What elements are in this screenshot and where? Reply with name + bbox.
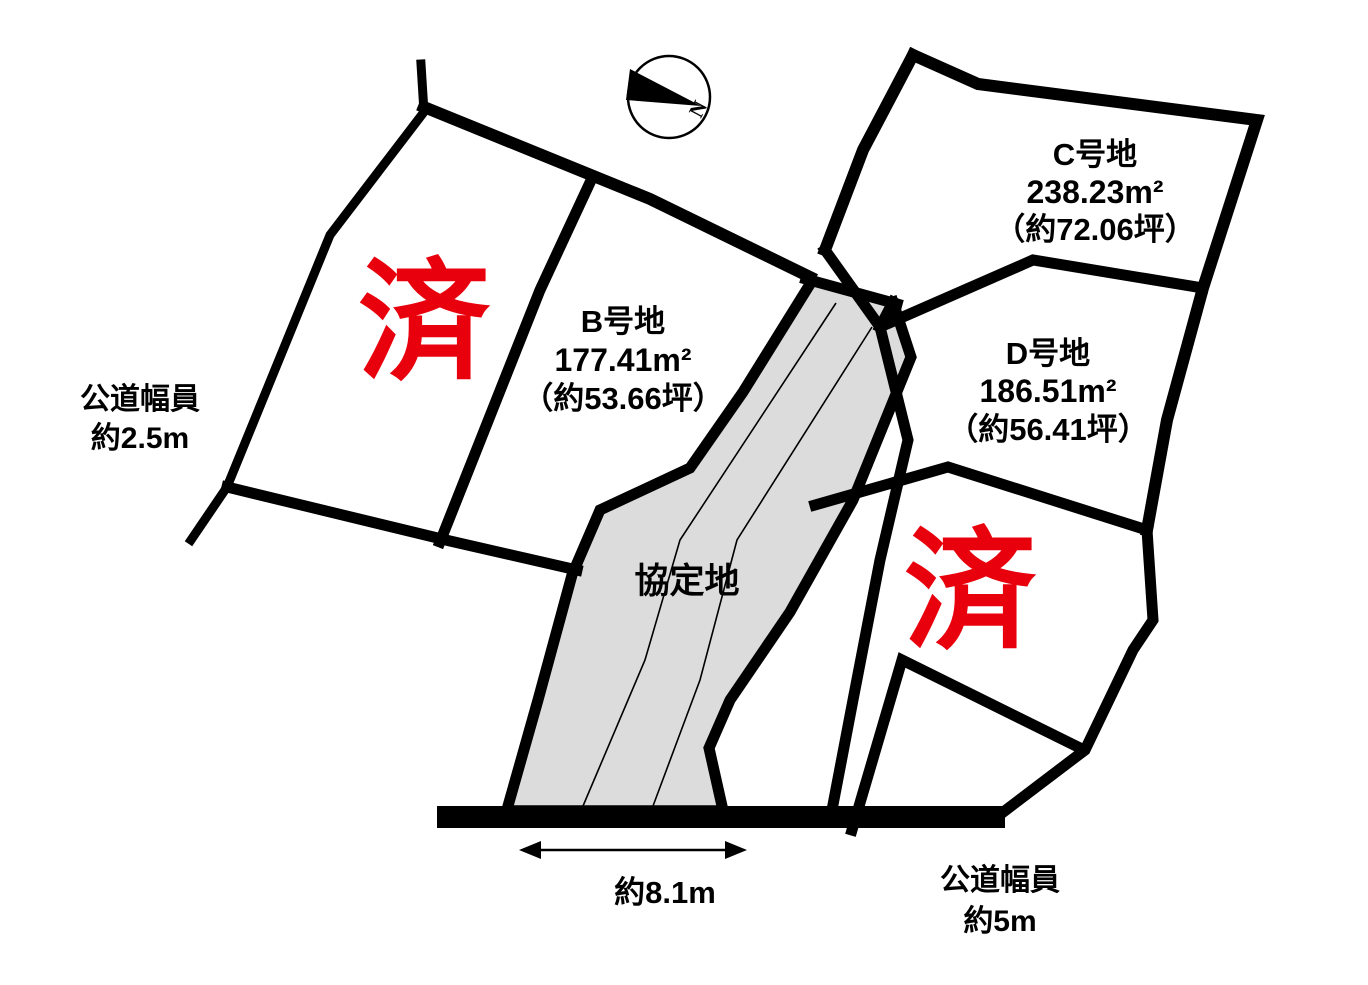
land-plot-diagram: N 約8.1m 済 済 C号地 238.23m² （約72.06坪） B号地 1… bbox=[0, 0, 1368, 985]
bottom-road-width: 約5m bbox=[963, 905, 1036, 938]
bottom-boundary-soldleft-b bbox=[227, 487, 577, 570]
sold-stamp-right: 済 bbox=[904, 518, 1037, 665]
left-road-width: 約2.5m bbox=[91, 422, 189, 455]
plot-c-name: C号地 bbox=[1053, 137, 1137, 172]
plot-b-label: B号地 177.41m² （約53.66坪） bbox=[522, 304, 724, 416]
plot-d-tsubo: （約56.41坪） bbox=[947, 412, 1149, 447]
plot-c-left-boundary bbox=[825, 55, 913, 250]
plot-c-area: 238.23m² bbox=[1027, 174, 1164, 210]
agreement-area-label: 協定地 bbox=[634, 562, 739, 601]
frontage-dimension: 約8.1m bbox=[519, 841, 747, 910]
sold-right-southwest-boundary bbox=[852, 660, 1080, 830]
north-compass: N bbox=[626, 56, 712, 138]
dimension-arrowhead-left-icon bbox=[519, 841, 541, 859]
separator-c-d bbox=[880, 260, 1203, 327]
plot-d-label: D号地 186.51m² （約56.41坪） bbox=[947, 336, 1149, 447]
sold-stamp-left: 済 bbox=[358, 249, 491, 396]
plot-b-tsubo: （約53.66坪） bbox=[522, 381, 724, 416]
bottom-road-name: 公道幅員 bbox=[940, 864, 1060, 897]
plot-b-area: 177.41m² bbox=[555, 342, 692, 378]
plot-d-name: D号地 bbox=[1006, 336, 1090, 371]
plot-d-area: 186.51m² bbox=[980, 373, 1117, 409]
plot-c-tsubo: （約72.06坪） bbox=[994, 212, 1196, 247]
plot-map-canvas: N 約8.1m 済 済 C号地 238.23m² （約72.06坪） B号地 1… bbox=[0, 0, 1368, 985]
bottom-road-label: 公道幅員 約5m bbox=[940, 864, 1060, 938]
left-road-name: 公道幅員 bbox=[80, 383, 200, 416]
frontage-dimension-label: 約8.1m bbox=[614, 875, 716, 910]
dimension-arrowhead-right-icon bbox=[725, 841, 747, 859]
plot-c-label: C号地 238.23m² （約72.06坪） bbox=[994, 137, 1196, 247]
left-road-label: 公道幅員 約2.5m bbox=[80, 383, 200, 455]
plot-b-name: B号地 bbox=[581, 304, 665, 339]
